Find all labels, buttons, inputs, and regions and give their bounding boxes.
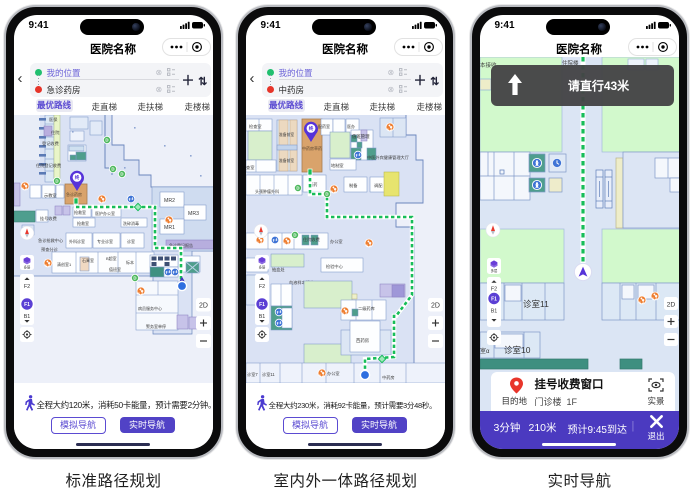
svg-text:住院: 住院: [51, 129, 60, 136]
svg-text:抢救室: 抢救室: [77, 220, 89, 226]
svg-text:医保: 医保: [49, 116, 58, 123]
svg-text:警务室单停: 警务室单停: [146, 323, 166, 329]
svg-text:西药房: 西药房: [356, 337, 370, 344]
svg-text:F1: F1: [259, 302, 265, 308]
svg-text:MR1: MR1: [164, 225, 175, 231]
svg-text:清创室1: 清创室1: [57, 261, 72, 267]
svg-text:多层: 多层: [23, 264, 30, 269]
svg-text:诊室10: 诊室10: [504, 345, 531, 355]
svg-text:住院登记收费: 住院登记收费: [36, 162, 61, 169]
svg-text:医办: 医办: [347, 123, 355, 129]
svg-text:抢救室: 抢救室: [74, 209, 86, 215]
svg-text:办公室: 办公室: [327, 370, 340, 377]
svg-text:制备: 制备: [349, 182, 358, 189]
svg-text:准备前室: 准备前室: [279, 158, 294, 163]
svg-text:B超室: B超室: [106, 255, 117, 261]
svg-text:值班管理: 值班管理: [352, 133, 370, 140]
svg-text:外科诊室: 外科诊室: [69, 238, 85, 244]
svg-text:病员服务中心: 病员服务中心: [138, 305, 162, 311]
svg-text:调配: 调配: [374, 182, 383, 189]
svg-text:诊室11: 诊室11: [523, 299, 549, 309]
svg-text:急诊药房: 急诊药房: [66, 191, 82, 197]
svg-text:F1: F1: [491, 296, 497, 302]
svg-text:标本: 标本: [126, 259, 134, 265]
svg-text:办公室: 办公室: [330, 238, 343, 245]
svg-text:室α: 室α: [480, 347, 490, 355]
svg-text:查室: 查室: [246, 164, 254, 171]
svg-text:挂号收费: 挂号收费: [40, 215, 57, 222]
svg-text:急诊抢救中心: 急诊抢救中心: [38, 237, 64, 244]
svg-text:F2: F2: [23, 283, 29, 289]
svg-text:2D: 2D: [666, 301, 675, 308]
svg-text:B1: B1: [23, 314, 30, 320]
svg-text:诊室11: 诊室11: [262, 371, 275, 378]
svg-text:二级药库: 二级药库: [358, 305, 375, 312]
svg-text:中医外宾健康管理大厅: 中医外宾健康管理大厅: [367, 154, 409, 161]
svg-text:登记收费: 登记收费: [42, 140, 59, 147]
svg-text:专业诊室: 专业诊室: [97, 238, 113, 244]
svg-text:多层: 多层: [490, 268, 497, 273]
svg-text:MR2: MR2: [164, 198, 175, 204]
svg-text:检验中心: 检验中心: [326, 263, 344, 270]
svg-text:医护办公室: 医护办公室: [95, 210, 115, 216]
svg-text:F2: F2: [490, 286, 496, 292]
svg-text:值班室: 值班室: [109, 266, 121, 272]
svg-text:F1: F1: [24, 302, 30, 308]
svg-text:2D: 2D: [199, 302, 208, 309]
svg-text:MR3: MR3: [188, 211, 199, 217]
svg-text:多层: 多层: [258, 264, 265, 269]
svg-text:检查室: 检查室: [249, 123, 262, 130]
svg-text:石膏室: 石膏室: [82, 257, 94, 263]
svg-text:2D: 2D: [431, 302, 440, 309]
svg-text:B1: B1: [258, 314, 265, 320]
svg-text:诊室: 诊室: [127, 238, 135, 244]
svg-text:F2: F2: [258, 283, 264, 289]
svg-text:中药房: 中药房: [382, 374, 395, 381]
svg-text:诊室7: 诊室7: [247, 371, 258, 378]
svg-text:洗碎消毒: 洗碎消毒: [123, 220, 139, 226]
svg-text:B1: B1: [490, 308, 497, 314]
svg-text:住院收费: 住院收费: [303, 236, 320, 243]
svg-text:地制室: 地制室: [331, 162, 344, 169]
svg-text:头颈肿瘤外科: 头颈肿瘤外科: [255, 188, 279, 194]
svg-text:配药室: 配药室: [318, 123, 330, 129]
svg-text:准备前室: 准备前室: [279, 132, 294, 137]
svg-text:中药房草药: 中药房草药: [302, 145, 322, 151]
svg-text:示教室: 示教室: [44, 192, 57, 199]
